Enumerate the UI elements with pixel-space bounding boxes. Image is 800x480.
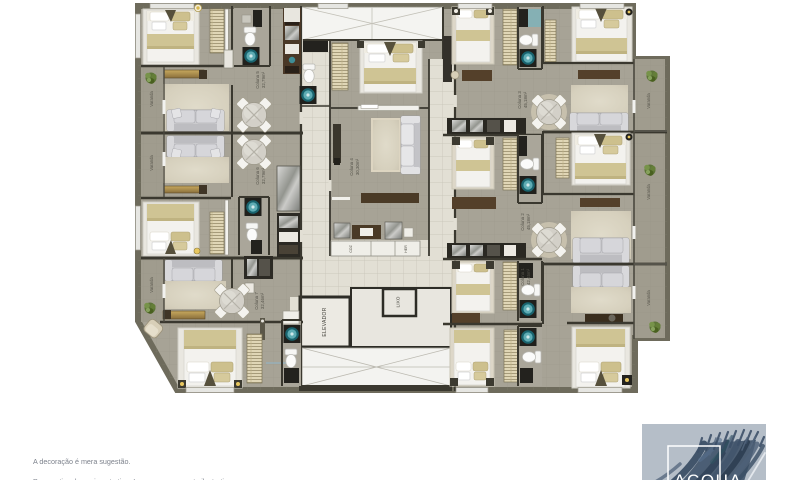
svg-text:LIXO: LIXO xyxy=(396,296,402,307)
svg-text:42,45m²: 42,45m² xyxy=(526,268,531,285)
svg-text:Coluna 5: Coluna 5 xyxy=(255,71,260,89)
svg-text:Varanda: Varanda xyxy=(646,290,651,306)
svg-text:ACQUA: ACQUA xyxy=(674,471,742,480)
svg-text:Coluna 2: Coluna 2 xyxy=(520,213,525,231)
svg-text:Coluna 4: Coluna 4 xyxy=(349,158,354,176)
svg-text:Varanda: Varanda xyxy=(149,277,154,293)
svg-text:ELEVADOR: ELEVADOR xyxy=(322,307,328,336)
svg-text:30,30m²: 30,30m² xyxy=(355,158,360,175)
svg-text:32,79m²: 32,79m² xyxy=(261,167,266,184)
svg-text:45,18m²: 45,18m² xyxy=(526,213,531,230)
svg-text:32,46m²: 32,46m² xyxy=(260,292,265,309)
svg-text:Coluna 6: Coluna 6 xyxy=(255,167,260,185)
svg-text:Varanda: Varanda xyxy=(149,155,154,171)
svg-text:Varanda: Varanda xyxy=(149,91,154,107)
svg-text:COZ: COZ xyxy=(349,244,353,252)
svg-text:32,79m²: 32,79m² xyxy=(261,71,266,88)
svg-text:Varanda: Varanda xyxy=(646,184,651,200)
svg-text:Coluna 1: Coluna 1 xyxy=(520,268,525,286)
svg-text:A decoração é mera sugestão.: A decoração é mera sugestão. xyxy=(33,457,131,466)
svg-text:Coluna 7: Coluna 7 xyxy=(254,292,259,310)
svg-text:45,18m²: 45,18m² xyxy=(523,91,528,108)
svg-text:HER: HER xyxy=(404,245,408,253)
svg-text:Coluna 3: Coluna 3 xyxy=(517,91,522,109)
svg-text:Varanda: Varanda xyxy=(646,93,651,109)
